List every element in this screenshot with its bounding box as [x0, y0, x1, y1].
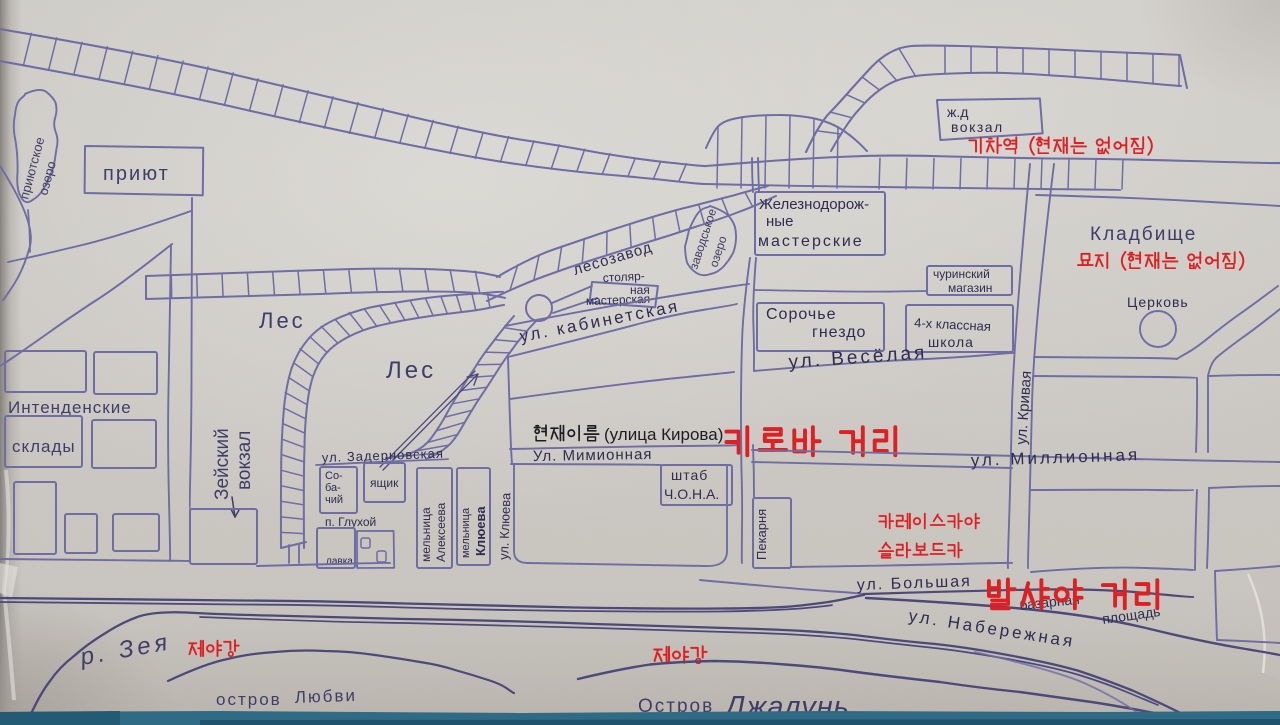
svg-text:приют: приют [103, 163, 170, 185]
svg-text:Ул. Мимионная: Ул. Мимионная [533, 446, 653, 465]
svg-text:вокзал: вокзал [234, 431, 255, 490]
svg-text:ящик: ящик [370, 476, 399, 490]
svg-text:ж.д: ж.д [947, 104, 968, 120]
svg-text:ба-: ба- [325, 482, 341, 494]
svg-text:Пекарня: Пекарня [754, 509, 769, 560]
svg-text:Сорочье: Сорочье [766, 306, 836, 323]
svg-text:мастерские: мастерские [758, 233, 864, 250]
svg-text:мельница: мельница [419, 507, 433, 562]
svg-text:Железнодорож-: Железнодорож- [759, 196, 869, 213]
svg-text:Со-: Со- [325, 470, 343, 482]
svg-text:чий: чий [325, 494, 343, 506]
svg-text:Лес: Лес [386, 357, 436, 384]
svg-text:склады: склады [12, 437, 76, 456]
svg-text:вокзал: вокзал [951, 119, 1004, 135]
svg-text:Клюева: Клюева [473, 506, 488, 556]
svg-text:(улица Кирова): (улица Кирова) [604, 425, 723, 444]
svg-text:Кладбище: Кладбище [1090, 224, 1197, 245]
svg-text:Ч.О.Н.А.: Ч.О.Н.А. [664, 486, 719, 502]
svg-text:Лес: Лес [259, 308, 306, 333]
svg-text:чуринский: чуринский [933, 267, 990, 281]
svg-text:Церковь: Церковь [1127, 294, 1189, 310]
svg-text:остров: остров [216, 690, 282, 709]
svg-text:Интенденские: Интенденские [8, 398, 132, 417]
svg-text:ул. Клюева: ул. Клюева [496, 492, 513, 560]
svg-text:мельница: мельница [460, 507, 472, 558]
svg-text:гнездо: гнездо [812, 324, 866, 341]
svg-text:Зейский: Зейский [212, 428, 233, 500]
svg-text:ные: ные [766, 213, 793, 230]
svg-text:Любви: Любви [294, 686, 357, 707]
svg-text:Алексеева: Алексеева [434, 502, 448, 562]
svg-text:магазин: магазин [948, 281, 992, 295]
svg-text:п. Глухой: п. Глухой [325, 515, 376, 529]
svg-text:школа: школа [928, 334, 974, 350]
svg-text:лавка: лавка [326, 556, 353, 567]
svg-text:штаб: штаб [671, 467, 708, 483]
